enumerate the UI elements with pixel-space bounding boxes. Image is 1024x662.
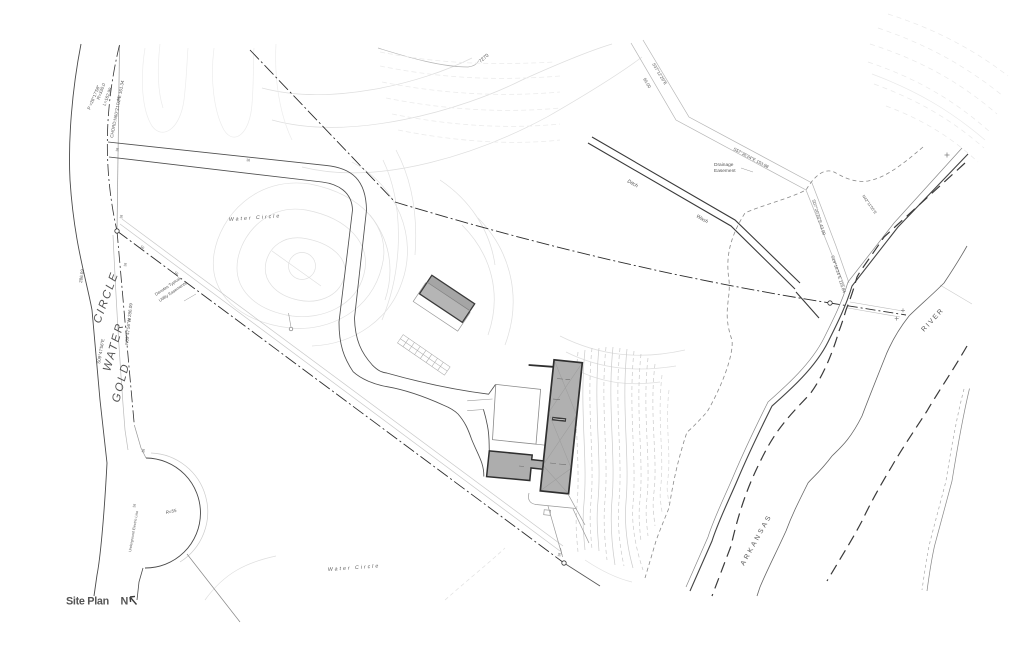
svg-text:Drainage: Drainage xyxy=(714,162,734,168)
svg-text:16: 16 xyxy=(557,553,562,558)
svg-text:N: N xyxy=(121,596,129,608)
svg-text:16: 16 xyxy=(127,318,132,323)
svg-text:Site Plan: Site Plan xyxy=(66,596,109,608)
svg-text:16: 16 xyxy=(246,158,250,162)
svg-text:16: 16 xyxy=(132,503,137,508)
svg-text:16: 16 xyxy=(119,215,124,220)
svg-text:16: 16 xyxy=(141,448,146,453)
svg-text:Easement: Easement xyxy=(714,168,736,174)
svg-text:16: 16 xyxy=(115,148,120,153)
svg-text:16: 16 xyxy=(123,263,128,268)
